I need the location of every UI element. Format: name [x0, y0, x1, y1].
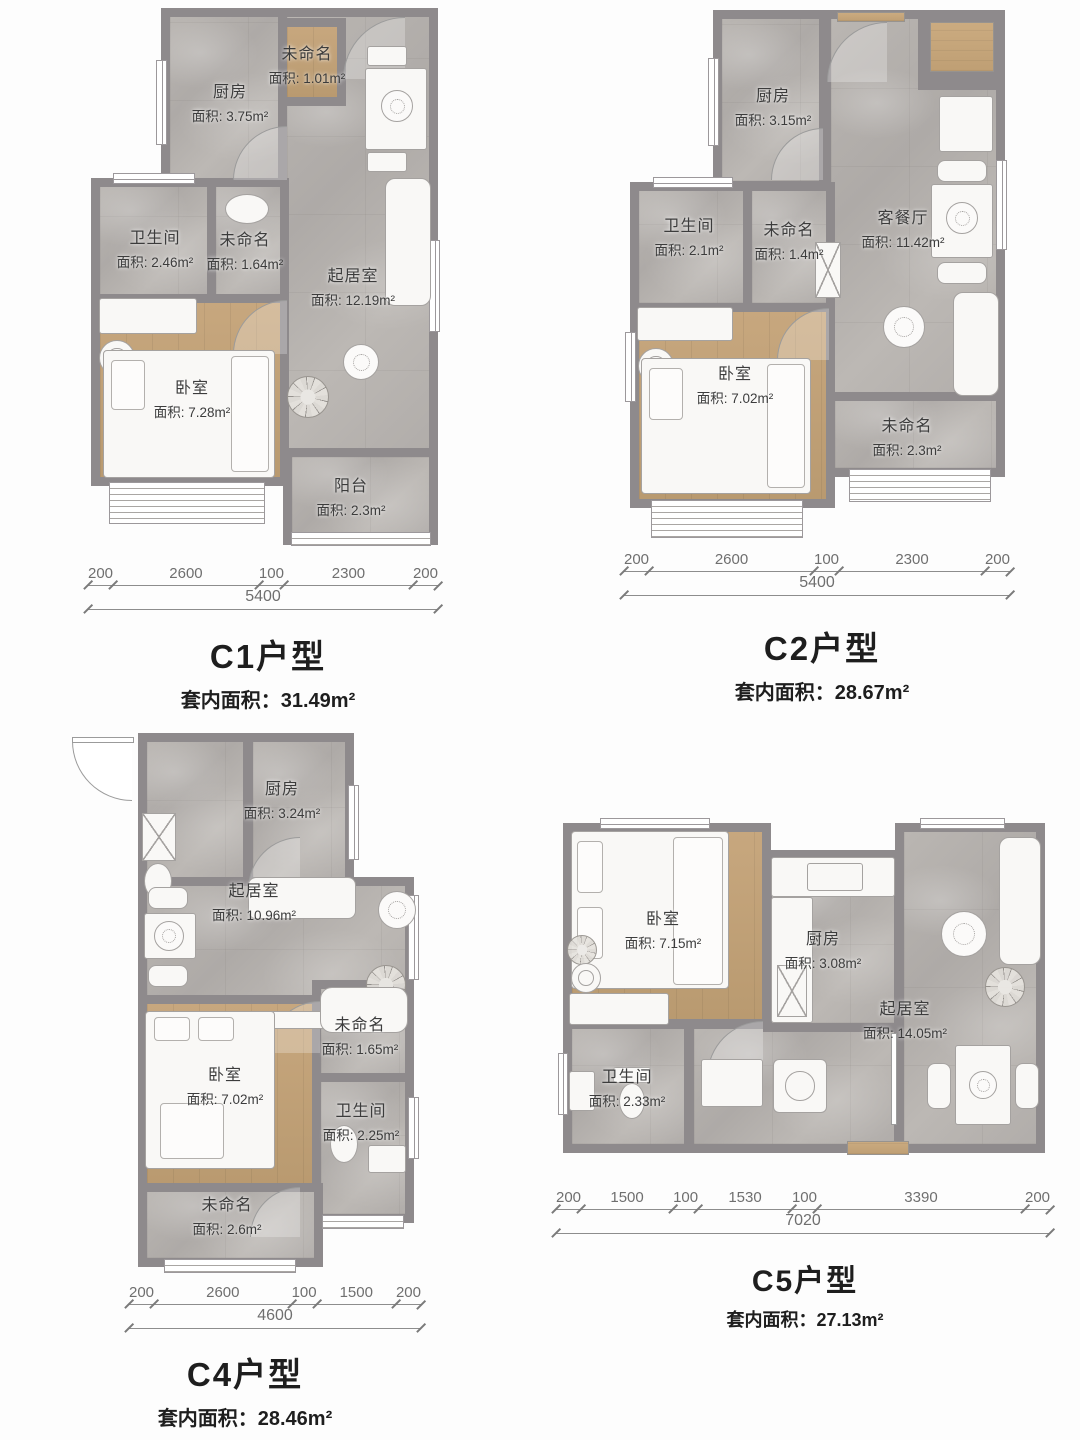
floorplan-c1: 厨房 面积: 3.75m² 未命名 面积: 1.01m² 卫生间 面积: 2.4…: [85, 8, 440, 545]
window: [558, 1053, 568, 1115]
room-label: 厨房 面积: 3.75m²: [192, 78, 269, 125]
bed-blanket: [160, 1103, 224, 1159]
entry-door-leaf-c4: [72, 737, 134, 743]
window: [708, 58, 719, 146]
room-label: 卧室 面积: 7.28m²: [154, 374, 231, 421]
threshold: [847, 1141, 909, 1155]
floorplan-c5: 卧室 面积: 7.15m² 厨房 面积: 3.08m² 起居室 面积: 14.0…: [555, 815, 1050, 1165]
washing-machine: [773, 1059, 827, 1113]
room-label: 卧室 面积: 7.02m²: [187, 1061, 264, 1108]
coffee-table: [941, 911, 987, 957]
floorplan-sheet: 厨房 面积: 3.75m² 未命名 面积: 1.01m² 卫生间 面积: 2.4…: [0, 0, 1080, 1440]
plan-title-c1: C1户型 套内面积：31.49m²: [118, 630, 418, 713]
bay-window: [164, 1259, 296, 1273]
dimension-segments: 200 2600 100 2300 200: [624, 548, 1010, 572]
bay-window: [109, 482, 265, 524]
room-label: 未命名 面积: 1.65m²: [322, 1011, 399, 1058]
washbasin: [368, 1145, 406, 1173]
room-label: 厨房 面积: 3.08m²: [785, 925, 862, 972]
room-label: 卫生间 面积: 2.25m²: [323, 1097, 400, 1144]
room-label: 未命名 面积: 1.64m²: [207, 226, 284, 273]
room-label: 未命名 面积: 1.01m²: [269, 40, 346, 87]
threshold: [837, 12, 905, 22]
window: [156, 60, 167, 145]
chair: [148, 887, 188, 909]
chair: [148, 965, 188, 987]
doormat: [930, 22, 994, 72]
dimension-line-c5: 200 1500 100 1530 100 3390 200 7020: [556, 1186, 1050, 1234]
side-table: [378, 891, 416, 929]
bay-window: [651, 500, 803, 538]
room-label: 未命名 面积: 2.6m²: [192, 1191, 261, 1238]
dimension-total: 7020: [556, 1210, 1050, 1234]
dimension-line-c4: 200 2600 100 1500 200 4600: [129, 1281, 421, 1329]
chair: [937, 262, 987, 284]
sink: [225, 194, 269, 224]
dimension-total: 5400: [624, 572, 1010, 596]
dimension-segments: 200 1500 100 1530 100 3390 200: [556, 1186, 1050, 1210]
plan-title-c4: C4户型 套内面积：28.46m²: [95, 1348, 395, 1431]
dimension-line-c2: 200 2600 100 2300 200 5400: [624, 548, 1010, 596]
dimension-segments: 200 2600 100 2300 200: [88, 562, 438, 586]
fridge: [939, 96, 993, 152]
room-label: 卧室 面积: 7.02m²: [697, 360, 774, 407]
dimension-total: 4600: [129, 1305, 421, 1329]
window: [625, 332, 636, 402]
entry-door-arc-c4: [72, 741, 132, 801]
window: [113, 173, 195, 184]
sliding-door-c5: [891, 1033, 897, 1125]
room-label: 客餐厅 面积: 11.42m²: [861, 204, 944, 251]
stove: [777, 965, 807, 1017]
coffee-table: [883, 306, 925, 348]
bed-pillow: [577, 841, 603, 893]
cabinet: [637, 307, 733, 341]
bed-pillow: [231, 356, 269, 472]
dimension-line-c1: 200 2600 100 2300 200 5400: [88, 562, 438, 610]
plan-title-c5: C5户型 套内面积：27.13m²: [655, 1256, 955, 1332]
plant-icon: [287, 376, 329, 418]
chair: [367, 152, 407, 172]
plate-icon: [969, 1071, 997, 1099]
window: [348, 785, 359, 860]
bed-pillow: [154, 1017, 190, 1041]
desk: [569, 993, 669, 1025]
chair: [1015, 1063, 1039, 1109]
room-label: 起居室 面积: 12.19m²: [311, 262, 395, 309]
room-label: 未命名 面积: 2.3m²: [872, 412, 941, 459]
bay-window: [849, 469, 991, 502]
kitchen-sink: [807, 863, 863, 891]
window: [920, 818, 1005, 829]
window: [996, 160, 1007, 250]
balcony-window: [291, 532, 431, 546]
side-table: [343, 344, 379, 380]
room-label: 起居室 面积: 14.05m²: [863, 995, 947, 1042]
floorplan-c2: 厨房 面积: 3.15m² 卫生间 面积: 2.1m² 未命名 面积: 1.4m…: [625, 10, 1010, 530]
room-label: 未命名 面积: 1.4m²: [754, 216, 823, 263]
room-label: 厨房 面积: 3.15m²: [735, 82, 812, 129]
plate-icon: [154, 921, 184, 951]
plate-icon: [946, 202, 978, 234]
room-label: 起居室 面积: 10.96m²: [212, 877, 296, 924]
plate-icon: [381, 90, 413, 122]
room-label: 卫生间 面积: 2.46m²: [117, 224, 194, 271]
cabinet: [99, 298, 197, 334]
window: [600, 818, 710, 829]
water-heater-xbox: [142, 813, 176, 861]
room-label: 厨房 面积: 3.24m²: [244, 775, 321, 822]
washbasin-vanity: [701, 1059, 763, 1107]
washer-icon: [571, 963, 601, 993]
sofa: [953, 292, 999, 396]
room-label: 卫生间 面积: 2.33m²: [589, 1063, 666, 1110]
window: [408, 1097, 419, 1159]
floorplan-c4: 厨房 面积: 3.24m² 起居室 面积: 10.96m² 未命名 面积: 1.…: [130, 725, 422, 1270]
dimension-total: 5400: [88, 586, 438, 610]
bed-cushion: [111, 360, 145, 410]
plan-title-c2: C2户型 套内面积：28.67m²: [672, 622, 972, 705]
dimension-segments: 200 2600 100 1500 200: [129, 1281, 421, 1305]
sofa: [999, 837, 1041, 965]
room-label: 卧室 面积: 7.15m²: [625, 905, 702, 952]
chair: [367, 46, 407, 66]
plant-icon: [567, 935, 597, 965]
window: [653, 177, 733, 188]
chair: [937, 160, 987, 182]
room-label: 阳台 面积: 2.3m²: [316, 472, 385, 519]
chair: [927, 1063, 951, 1109]
bed-cushion: [649, 368, 683, 420]
room-label: 卫生间 面积: 2.1m²: [654, 212, 723, 259]
plant-icon: [985, 967, 1025, 1007]
bed-pillow: [198, 1017, 234, 1041]
bay-window: [322, 1215, 404, 1229]
